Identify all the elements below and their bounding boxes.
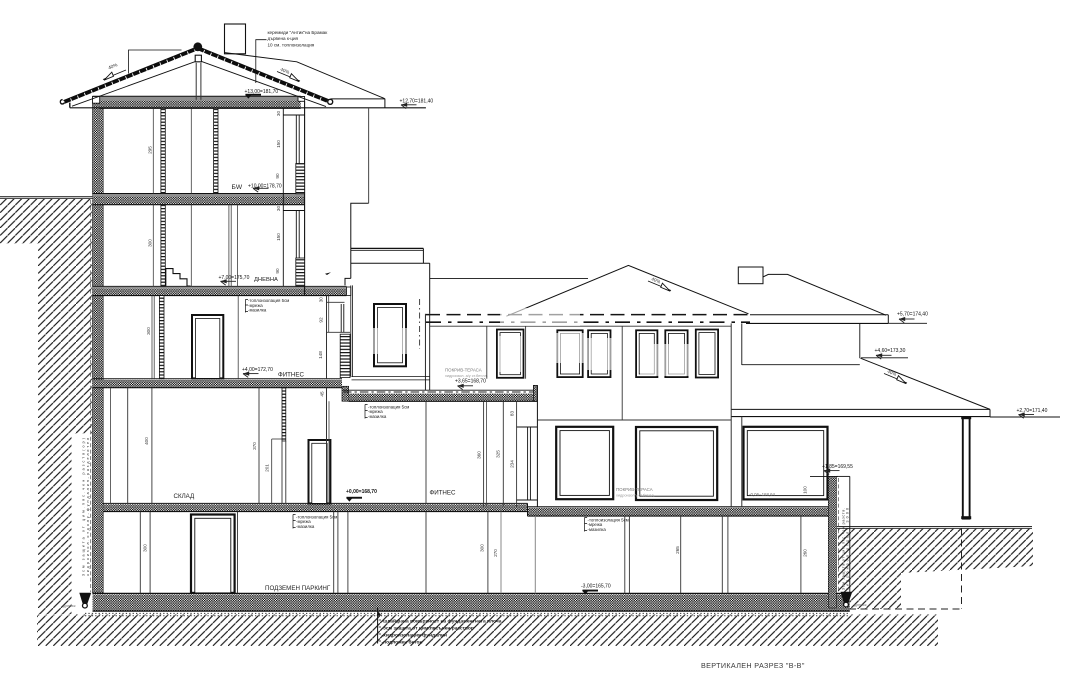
svg-text:100: 100 [803,486,808,494]
svg-text:300: 300 [148,239,153,247]
svg-text:дренаж: дренаж [854,603,867,607]
svg-text:ПОКРИВ-ТЕРАСА: ПОКРИВ-ТЕРАСА [616,487,653,492]
svg-text:150: 150 [276,233,281,241]
svg-text:90: 90 [275,268,280,274]
svg-text:+2,70=171,40: +2,70=171,40 [1017,408,1048,414]
svg-text:ФИТНЕС: ФИТНЕС [278,371,305,378]
svg-text:150: 150 [276,140,281,148]
svg-text:+1,85=169,55: +1,85=169,55 [822,464,853,470]
svg-text:+4,60=173,30: +4,60=173,30 [875,348,906,354]
svg-text:265: 265 [675,546,680,554]
svg-text:-3см защита от цим.пясъчен раз: -3см защита от цим.пясъчен разствор [382,625,474,631]
svg-text:-мазилка: -мазилка [368,414,387,419]
svg-text:-подложен бетон: -подложен бетон [382,638,423,645]
svg-text:201: 201 [265,464,270,472]
svg-text:+3,65=168,70: +3,65=168,70 [455,379,486,385]
svg-text:90: 90 [275,173,280,179]
svg-text:ПОДЗЕМЕН ПАРКИНГ: ПОДЗЕМЕН ПАРКИНГ [265,585,331,592]
svg-text:хидроизол.отдолу-фундалин-разд: хидроизол.отдолу-фундалин-разделител [86,438,90,576]
svg-text:300: 300 [143,544,148,552]
svg-text:-мазилка: -мазилка [588,527,607,532]
svg-text:-мазилка: -мазилка [248,308,267,313]
svg-text:ПОКРИВ-ТЕРАСА: ПОКРИВ-ТЕРАСА [445,367,482,372]
svg-text:керемиди "Антик"на Брамак: керемиди "Антик"на Брамак [268,30,329,35]
svg-text:300: 300 [146,327,151,335]
svg-text:+0,00=168,70: +0,00=168,70 [346,489,377,495]
svg-text:370: 370 [252,442,257,450]
svg-text:дренаж: дренаж [63,604,76,608]
svg-text:45: 45 [320,391,325,397]
svg-text:92: 92 [319,317,324,323]
svg-text:ДНЕВНА: ДНЕВНА [254,277,278,283]
svg-text:300: 300 [479,544,484,552]
svg-text:400: 400 [144,437,149,445]
svg-text:+7,00=175,70: +7,00=175,70 [219,275,250,281]
svg-text:ВЕРТИКАЛЕН РАЗРЕЗ "В-В": ВЕРТИКАЛЕН РАЗРЕЗ "В-В" [701,661,805,670]
svg-text:СКЛАД: СКЛАД [174,493,195,500]
svg-text:хидроизол. а/у ст.бет.пл.: хидроизол. а/у ст.бет.пл. [445,374,488,378]
svg-text:295: 295 [148,146,153,154]
svg-text:30: 30 [319,297,324,303]
svg-text:ФИТНЕС: ФИТНЕС [430,490,457,497]
svg-text:+4,00=172,70: +4,00=172,70 [242,367,273,373]
svg-text:-0,06=168,64: -0,06=168,64 [749,492,776,497]
svg-text:-3,00=165,70: -3,00=165,70 [581,583,611,589]
svg-text:+5,70=174,40: +5,70=174,40 [897,312,928,318]
svg-text:-мазилка: -мазилка [296,524,315,529]
svg-text:360: 360 [477,451,482,459]
svg-text:БW: БW [232,184,243,191]
svg-text:хидроизол/у ст.бет.пл.: хидроизол/у ст.бет.пл. [616,493,655,497]
svg-text:дървена к-ция: дървена к-ция [268,36,299,41]
svg-text:10 см. топлоизолация: 10 см. топлоизолация [268,43,315,48]
svg-text:260: 260 [803,549,808,557]
svg-text:325: 325 [496,450,501,458]
svg-text:30: 30 [276,206,281,212]
svg-text:234: 234 [510,460,515,468]
svg-text:148: 148 [318,351,323,359]
svg-text:-шлайфана повърхност на фундам: -шлайфана повърхност на фундаментната пл… [382,617,502,624]
svg-text:270: 270 [493,549,498,557]
svg-text:83: 83 [510,411,515,417]
svg-text:-хидроизолация фундалин: -хидроизолация фундалин [382,631,447,638]
svg-text:30: 30 [276,111,281,117]
